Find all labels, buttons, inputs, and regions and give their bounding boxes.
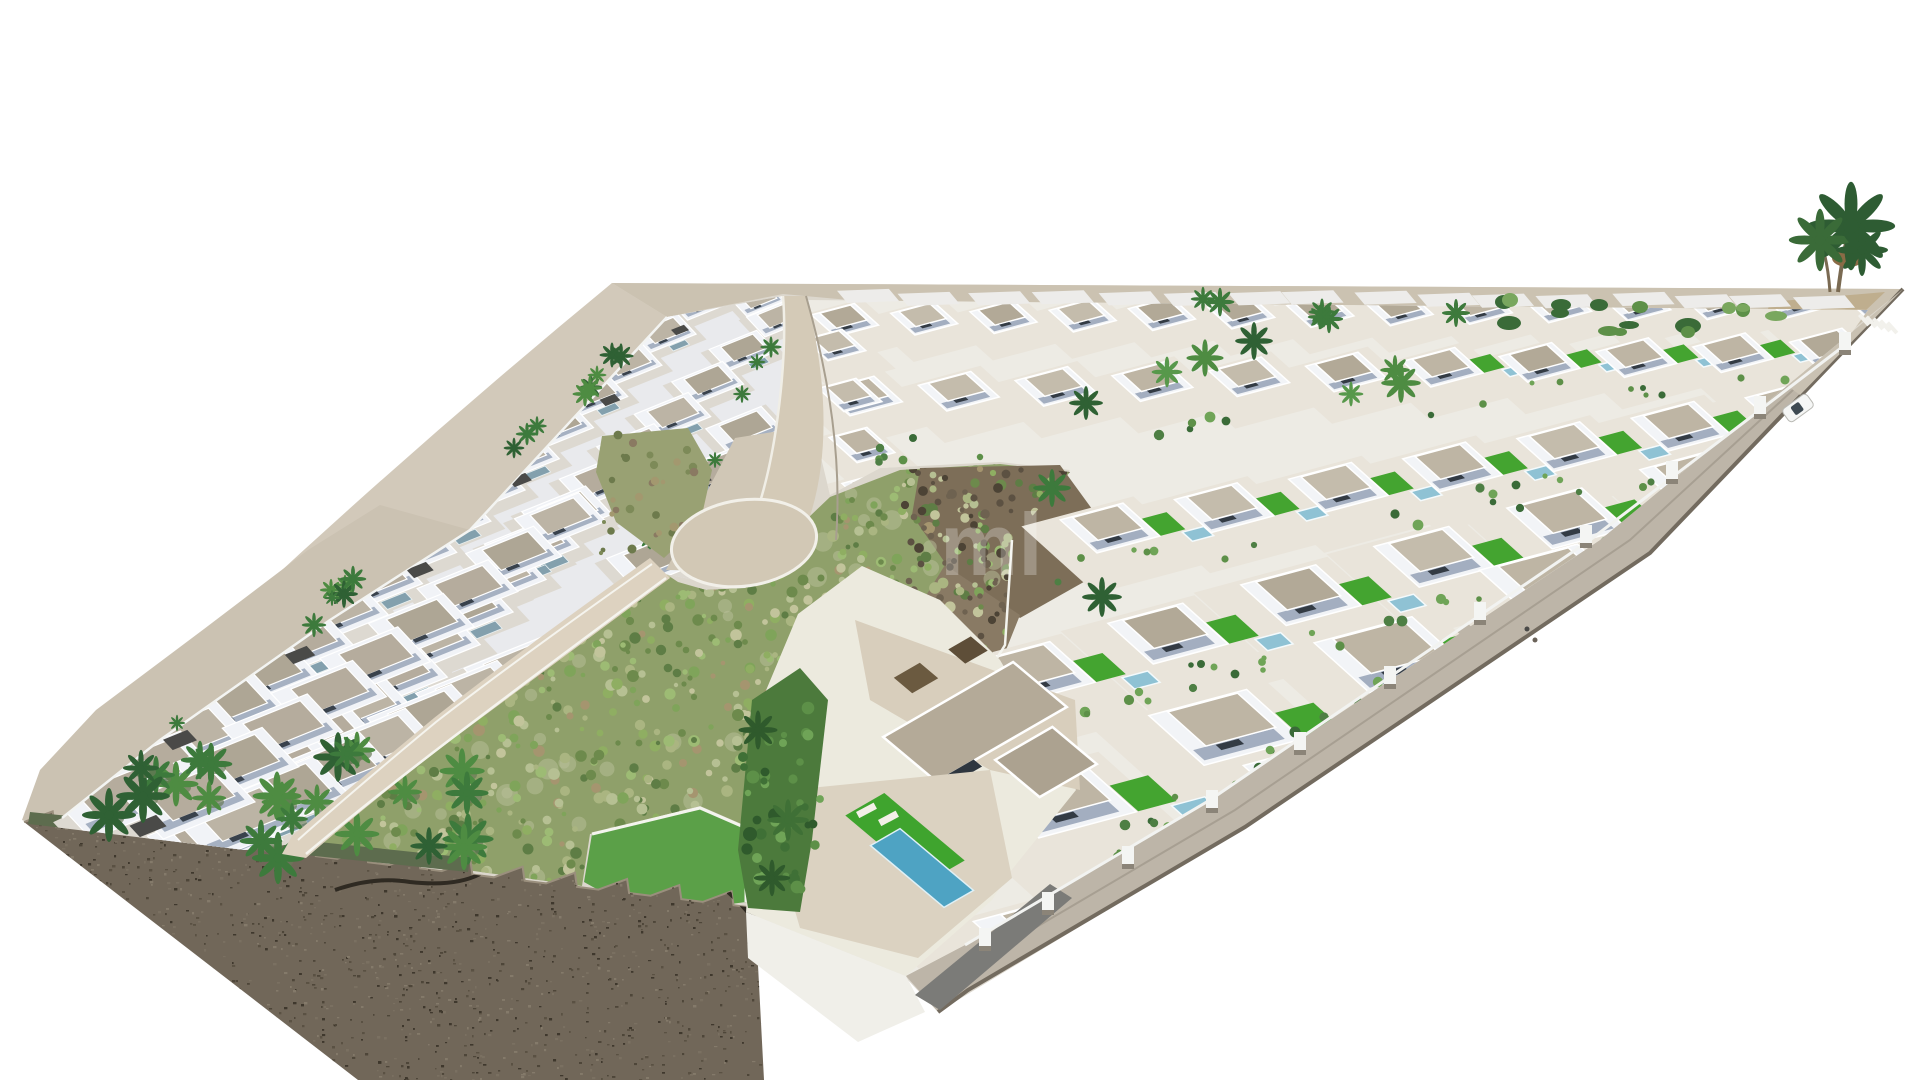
svg-text:ml: ml <box>940 495 1043 594</box>
